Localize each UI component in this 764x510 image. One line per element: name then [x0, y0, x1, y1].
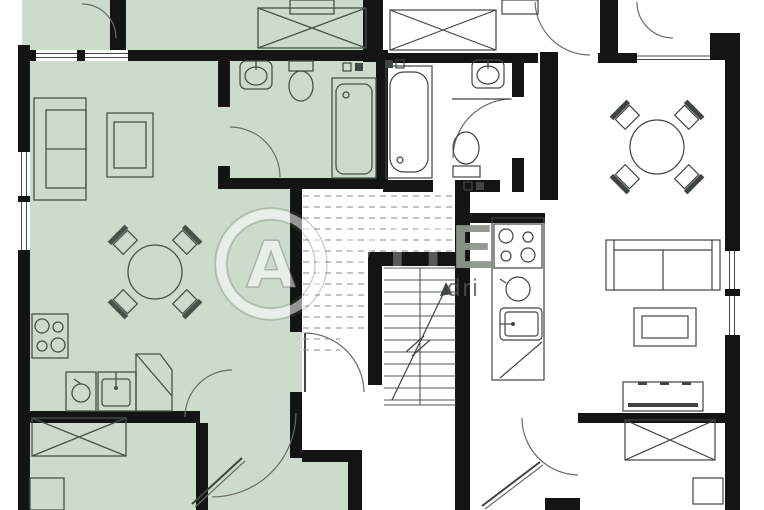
wall-segment — [725, 55, 740, 251]
nightstand-right — [693, 478, 723, 504]
door-arc-bottom-right-room — [522, 418, 578, 475]
floor-plan-drawing: A VIT E dri — [0, 0, 764, 510]
wall-segment — [725, 335, 740, 510]
wall-segment — [512, 53, 524, 97]
wall-segment — [598, 53, 637, 63]
right-wall-window — [725, 251, 740, 335]
watermark-logo-letter: A — [246, 229, 296, 303]
top-left-double-window — [36, 50, 128, 61]
door-arc-balcony-top-right — [637, 2, 673, 38]
wall-segment — [30, 411, 200, 423]
wall-segment — [600, 0, 618, 53]
stove-right — [494, 224, 542, 268]
wall-segment — [18, 50, 36, 61]
counter-appliance-right — [500, 277, 530, 301]
wall-segment — [290, 392, 302, 458]
watermark-letter-on-wall: E — [452, 213, 493, 282]
wall-segment — [128, 50, 232, 61]
washbasin-right — [472, 60, 504, 88]
wall-segment — [110, 0, 126, 52]
corner-cabinet-right — [500, 342, 542, 378]
watermark-letters-faint: VIT — [340, 214, 460, 281]
wall-segment — [540, 52, 558, 200]
desk-dresser-right — [623, 382, 703, 411]
stair-direction-arrow — [392, 282, 452, 400]
kitchen-right — [492, 218, 544, 380]
wall-segment — [218, 55, 230, 107]
wall-segment — [545, 498, 580, 510]
kitchen-sink-right — [500, 308, 542, 340]
wall-segment — [18, 250, 30, 510]
wall-segment — [348, 450, 362, 510]
wall-segment — [512, 158, 524, 192]
top-right-window — [637, 53, 710, 63]
toilet-right — [452, 99, 510, 177]
coffee-table-right — [634, 308, 696, 346]
left-wall-window — [18, 152, 30, 250]
watermark-small-text: dri — [447, 275, 480, 302]
crossed-bed-top-right — [390, 10, 496, 50]
crossed-bed-bottom-right — [625, 420, 715, 460]
counter-right — [492, 218, 544, 380]
door-arc-right-hall-top — [535, 2, 590, 55]
shelf-top-right — [502, 0, 538, 14]
wall-segment — [18, 45, 30, 152]
sofa-right — [606, 240, 720, 290]
door-arc-right-bathroom — [453, 99, 512, 158]
floor-plan-canvas: A VIT E dri — [0, 0, 764, 510]
dining-table-right — [610, 100, 705, 195]
diagonal-open-door-entry — [482, 462, 543, 509]
wall-segment — [383, 180, 433, 192]
bathtub-right — [386, 66, 432, 178]
wall-segment — [218, 178, 388, 189]
corridor-cutout — [362, 462, 376, 510]
wall-segment — [578, 413, 725, 423]
